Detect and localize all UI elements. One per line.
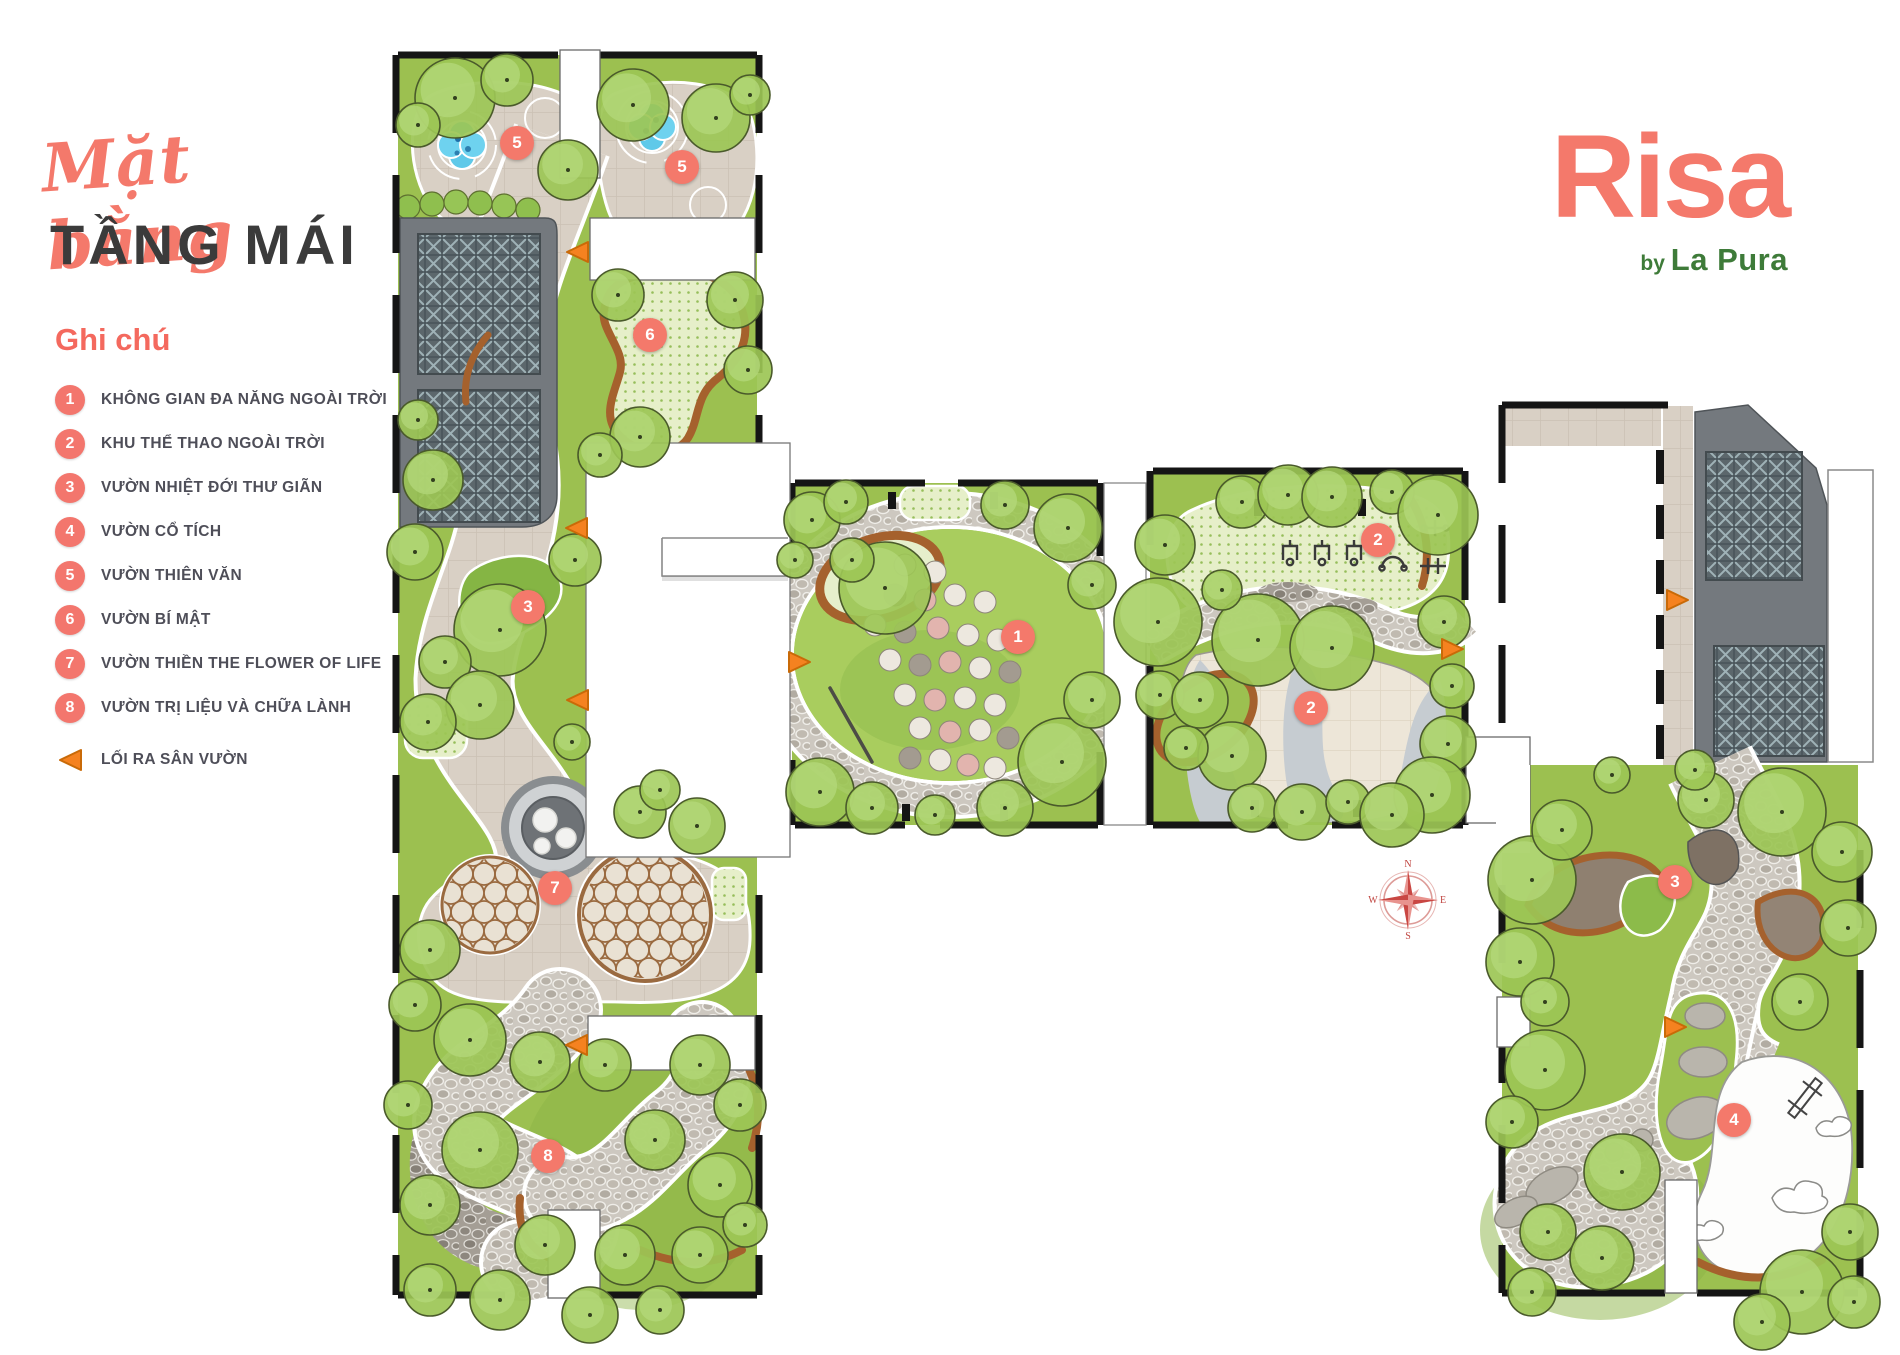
plan-marker-4: 4 <box>1717 1103 1751 1137</box>
garden-exit-arrow <box>1661 1013 1691 1041</box>
legend-number-badge: 1 <box>55 385 85 415</box>
plan-marker-3: 3 <box>511 590 545 624</box>
garden-exit-arrow <box>1438 635 1468 663</box>
legend-item-exit: LỐI RA SÂN VƯỜN <box>55 745 395 775</box>
legend-label: VƯỜN NHIỆT ĐỚI THƯ GIÃN <box>101 479 323 497</box>
legend-number-badge: 6 <box>55 605 85 635</box>
legend-item-6: 6VƯỜN BÍ MẬT <box>55 605 395 635</box>
legend-number-badge: 2 <box>55 429 85 459</box>
legend-label: VƯỜN BÍ MẬT <box>101 611 211 629</box>
garden-exit-arrow <box>562 686 592 714</box>
legend-label: VƯỜN TRỊ LIỆU VÀ CHỮA LÀNH <box>101 699 351 717</box>
svg-text:E: E <box>1440 895 1446 906</box>
legend-label: LỐI RA SÂN VƯỜN <box>101 751 248 769</box>
legend-item-5: 5VƯỜN THIÊN VĂN <box>55 561 395 591</box>
legend-number-badge: 3 <box>55 473 85 503</box>
legend-label: KHÔNG GIAN ĐA NĂNG NGOÀI TRỜI <box>101 391 387 409</box>
legend-item-7: 7VƯỜN THIỀN THE FLOWER OF LIFE <box>55 649 395 679</box>
plan-marker-5: 5 <box>500 126 534 160</box>
legend-item-1: 1KHÔNG GIAN ĐA NĂNG NGOÀI TRỜI <box>55 385 395 415</box>
solar-deck-right <box>1695 405 1873 762</box>
garden-exit-arrow <box>785 648 815 676</box>
legend-label: VƯỜN THIÊN VĂN <box>101 567 242 585</box>
legend-item-4: 4VƯỜN CỔ TÍCH <box>55 517 395 547</box>
legend-list: 1KHÔNG GIAN ĐA NĂNG NGOÀI TRỜI2KHU THỂ T… <box>55 385 395 789</box>
legend-item-2: 2KHU THỂ THAO NGOÀI TRỜI <box>55 429 395 459</box>
roof-plan-page: NESW Mặt bằng TẦNG MÁI Ghi chú 1KHÔNG GI… <box>0 0 1900 1355</box>
garden-exit-arrow <box>561 1031 591 1059</box>
legend-heading: Ghi chú <box>55 322 170 358</box>
plan-marker-2: 2 <box>1294 691 1328 725</box>
exit-triangle-icon <box>55 746 85 774</box>
legend-item-8: 8VƯỜN TRỊ LIỆU VÀ CHỮA LÀNH <box>55 693 395 723</box>
legend-label: KHU THỂ THAO NGOÀI TRỜI <box>101 435 325 453</box>
brand-logo: Risa by La Pura <box>1488 118 1788 278</box>
legend-number-badge: 7 <box>55 649 85 679</box>
legend-number-badge: 8 <box>55 693 85 723</box>
garden-exit-arrow <box>562 238 592 266</box>
logo-name: Risa <box>1488 118 1788 236</box>
page-title-main: TẦNG MÁI <box>50 212 359 277</box>
legend-number-badge: 5 <box>55 561 85 591</box>
plan-marker-6: 6 <box>633 318 667 352</box>
legend-number-badge: 4 <box>55 517 85 547</box>
plan-marker-7: 7 <box>538 871 572 905</box>
svg-text:N: N <box>1404 859 1411 870</box>
legend-item-3: 3VƯỜN NHIỆT ĐỚI THƯ GIÃN <box>55 473 395 503</box>
legend-label: VƯỜN CỔ TÍCH <box>101 523 221 541</box>
plan-marker-3: 3 <box>1658 865 1692 899</box>
plan-marker-8: 8 <box>531 1139 565 1173</box>
compass-rose: NESW <box>1368 859 1446 942</box>
svg-text:W: W <box>1368 895 1378 906</box>
plan-marker-2: 2 <box>1361 523 1395 557</box>
svg-text:S: S <box>1405 931 1411 942</box>
plan-marker-5: 5 <box>665 150 699 184</box>
plan-marker-1: 1 <box>1001 620 1035 654</box>
legend-label: VƯỜN THIỀN THE FLOWER OF LIFE <box>101 655 382 673</box>
garden-exit-arrow <box>1663 586 1693 614</box>
logo-byline: by La Pura <box>1488 242 1788 278</box>
garden-exit-arrow <box>561 514 591 542</box>
